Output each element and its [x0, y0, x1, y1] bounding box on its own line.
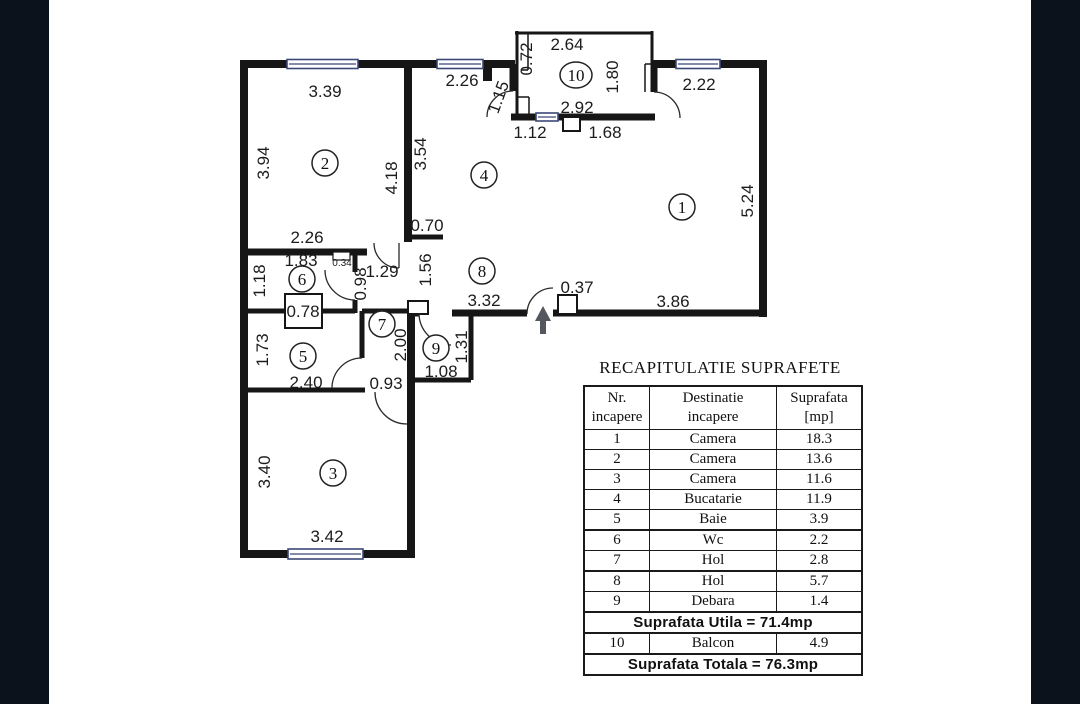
svg-text:7: 7 — [378, 315, 387, 334]
dim-hol8-width: 3.32 — [467, 291, 500, 310]
window-room1-top — [676, 60, 720, 69]
dim-room2-top: 3.39 — [308, 82, 341, 101]
dim-balcony-bottom-left: 1.12 — [513, 123, 546, 142]
window-room2-top — [287, 60, 358, 69]
header-suprafata: Suprafata[mp] — [777, 386, 863, 430]
dim-debara-width: 1.08 — [424, 362, 457, 381]
bath-door-arc — [332, 358, 362, 388]
dim-room2-left: 3.94 — [254, 146, 273, 179]
svg-text:3: 3 — [329, 464, 338, 483]
dim-wc-left: 1.18 — [250, 264, 269, 297]
dim-room1-top: 2.22 — [682, 75, 715, 94]
dim-balcony-side-left: 0.72 — [517, 42, 536, 75]
recap-table: Nr.incapere Destinatieincapere Suprafata… — [583, 385, 863, 676]
room-4-marker: 4 — [471, 162, 497, 188]
dim-balcony-width-top: 2.64 — [550, 35, 583, 54]
dim-entry-pillar: 0.37 — [560, 278, 593, 297]
table-row: 8Hol5.7 — [584, 571, 862, 592]
window-kitchen-top — [437, 60, 483, 69]
table-row: 7Hol2.8 — [584, 551, 862, 572]
room-3-marker: 3 — [320, 460, 346, 486]
dim-hall-door: 1.29 — [365, 262, 398, 281]
window-room3-bottom — [288, 549, 363, 559]
dim-wc-top: 1.83 — [284, 251, 317, 270]
header-nr-incapere: Nr.incapere — [584, 386, 650, 430]
dim-room3-bottom: 3.42 — [310, 527, 343, 546]
table-row: 5Baie3.9 — [584, 510, 862, 531]
svg-text:1: 1 — [678, 198, 687, 217]
dim-kitchen-left: 3.54 — [411, 137, 430, 170]
table-row: 9Debara1.4 — [584, 592, 862, 613]
header-destinatie: Destinatieincapere — [650, 386, 777, 430]
table-row: 6Wc2.2 — [584, 530, 862, 551]
subtotal-label: Suprafata Utila = 71.4mp — [584, 612, 862, 633]
table-row: 3Camera11.6 — [584, 470, 862, 490]
dim-kitchen-window-top: 2.26 — [445, 71, 478, 90]
balcony-row: 10Balcon4.9 — [584, 633, 862, 654]
room-1-marker: 1 — [669, 194, 695, 220]
dim-hall7-height: 2.00 — [391, 328, 410, 361]
recap-header-row: Nr.incapere Destinatieincapere Suprafata… — [584, 386, 862, 430]
room-8-marker: 8 — [469, 258, 495, 284]
room-2-marker: 2 — [312, 150, 338, 176]
total-row: Suprafata Totala = 76.3mp — [584, 654, 862, 675]
table-row: 2Camera13.6 — [584, 450, 862, 470]
scanned-floor-plan-page: 1 2 3 4 5 6 7 8 9 10 2.64 0.72 1.80 2.92… — [0, 0, 1080, 704]
dim-kitchen-stub: 0.70 — [410, 216, 443, 235]
dim-balcony-door: 1.15 — [484, 78, 513, 116]
dim-balcony-side-right: 1.80 — [603, 60, 622, 93]
entry-pillar — [558, 295, 577, 314]
balcony-right-door-arc — [654, 92, 680, 118]
table-row: 1Camera18.3 — [584, 430, 862, 450]
svg-text:4: 4 — [480, 166, 489, 185]
balcony-door-threshold — [563, 117, 580, 131]
dim-room2-right: 4.18 — [382, 161, 401, 194]
room-9-marker: 9 — [423, 335, 449, 361]
dim-room1-bottom: 3.86 — [656, 292, 689, 311]
floor-plan-drawing: 1 2 3 4 5 6 7 8 9 10 2.64 0.72 1.80 2.92… — [0, 0, 1080, 704]
dim-room3-door: 0.93 — [369, 374, 402, 393]
dim-hall-wall-left: 1.56 — [416, 253, 435, 286]
room-5-marker: 5 — [290, 343, 316, 369]
dim-bath-left: 1.73 — [253, 333, 272, 366]
dim-room1-right: 5.24 — [738, 184, 757, 217]
dim-room3-left: 3.40 — [255, 455, 274, 488]
room-10-marker: 10 — [560, 62, 592, 88]
dim-balcony-width-inner: 2.92 — [560, 98, 593, 117]
dim-room2-bottom: 2.26 — [290, 228, 323, 247]
svg-text:9: 9 — [432, 339, 441, 358]
interior-walls — [244, 64, 767, 390]
window-balcony — [536, 113, 558, 121]
dim-debara-right: 1.31 — [452, 330, 471, 363]
entrance-door-arc — [527, 288, 553, 314]
dim-wc-niche: 0.34 — [332, 258, 352, 269]
svg-text:8: 8 — [478, 262, 487, 281]
svg-text:6: 6 — [298, 270, 307, 289]
table-row: 4Bucatarie11.9 — [584, 490, 862, 510]
dim-bath-bottom: 2.40 — [289, 373, 322, 392]
svg-text:5: 5 — [299, 347, 308, 366]
dim-shaft: 0.78 — [286, 302, 319, 321]
wall-step — [483, 64, 492, 81]
recap-table-title: RECAPITULATIE SUPRAFETE — [583, 358, 857, 378]
subtotal-row: Suprafata Utila = 71.4mp — [584, 612, 862, 633]
total-label: Suprafata Totala = 76.3mp — [584, 654, 862, 675]
hall-pillar — [408, 301, 428, 314]
entrance-arrow-icon — [535, 306, 551, 334]
dim-balcony-bottom-right: 1.68 — [588, 123, 621, 142]
svg-text:2: 2 — [321, 154, 330, 173]
room3-door-arc — [375, 392, 407, 424]
svg-text:10: 10 — [568, 66, 585, 85]
